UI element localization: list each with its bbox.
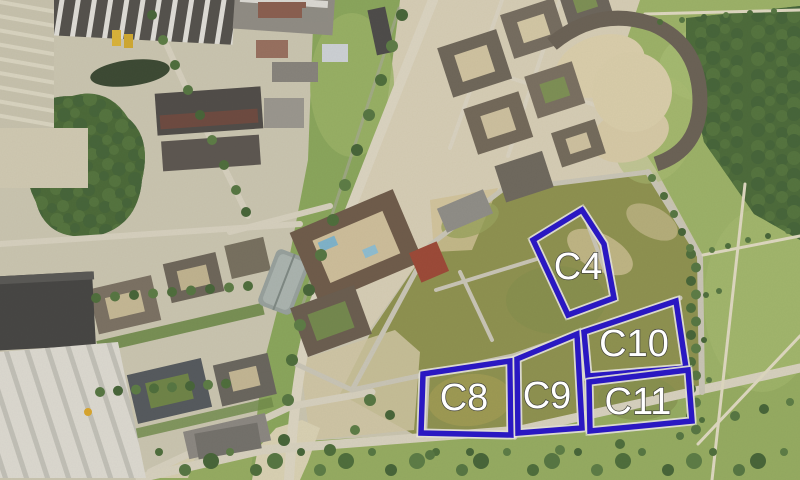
parcel-C4-label: C4 xyxy=(554,246,603,288)
photo-grain xyxy=(0,0,800,480)
parcel-C9-label: C9 xyxy=(523,375,572,417)
parcel-C11-label: C11 xyxy=(605,381,672,423)
parcel-C10-label: C10 xyxy=(599,323,669,365)
aerial-map: C4C8C9C10C11 xyxy=(0,0,800,480)
parcel-C8-label: C8 xyxy=(440,377,489,419)
